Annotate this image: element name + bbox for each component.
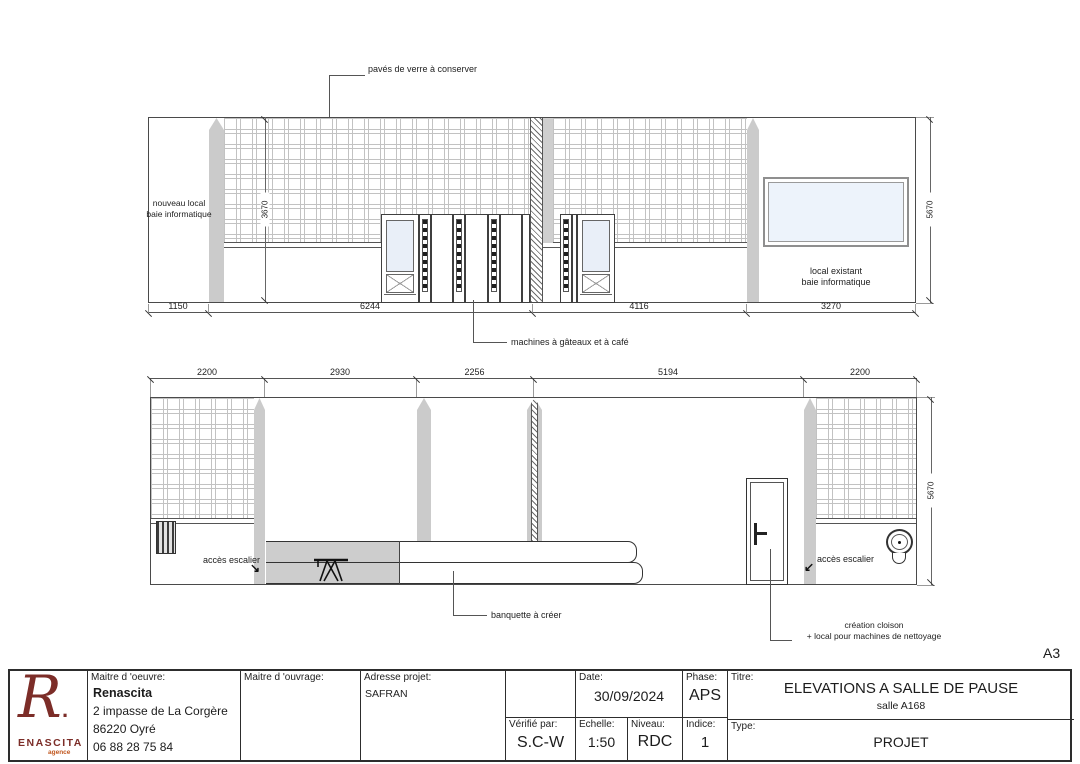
titre-cell: Titre: ELEVATIONS A SALLE DE PAUSE salle… (727, 671, 1074, 719)
adresse-projet-cell: Adresse projet: SAFRAN (360, 671, 505, 760)
dim-ext-top-e2 (917, 397, 935, 398)
wall-junction-shadow (543, 118, 553, 243)
date-cell: Date: 30/09/2024 (575, 671, 682, 717)
note-banquette: banquette à créer (491, 610, 562, 621)
note-local-existant-line1: local existant (810, 266, 862, 276)
vending-machine-panel (560, 214, 572, 303)
wall-junction-hatch (530, 118, 543, 302)
sheet-size-label: A3 (1043, 645, 1060, 661)
note-acces-escalier-right: accès escalier (817, 554, 874, 565)
echelle-cell: Echelle: 1:50 (575, 717, 627, 760)
leader-cloison-h (770, 640, 792, 641)
vending-machine-glass-right (577, 214, 615, 303)
dim-vertical-5670-e1: 5670 (930, 117, 931, 303)
machine-base (580, 294, 612, 301)
note-creation-cloison-line2: + local pour machines de nettoyage (807, 631, 941, 641)
type-value: PROJET (728, 734, 1074, 750)
indice-cell: Indice: 1 (682, 717, 727, 760)
dim-3270: 3270 (746, 301, 916, 311)
note-local-existant-line2: baie informatique (801, 277, 870, 287)
architectural-sheet: pavés de verre à conserver (0, 0, 1080, 764)
door (746, 478, 788, 585)
banquette-divider (399, 541, 400, 584)
maitre-ouvrage-label: Maitre d 'ouvrage: (244, 672, 324, 683)
note-creation-cloison-line1: création cloison (844, 620, 903, 630)
vending-machine-cabinet (431, 214, 453, 303)
dim-5194: 5194 (533, 367, 803, 377)
stair-grille (156, 521, 176, 554)
note-nouveau-local-line2: baie informatique (146, 209, 211, 219)
leader-machines-h (473, 342, 507, 343)
machine-button-panel (456, 219, 462, 292)
arrow-sw-icon: ↙ (804, 561, 814, 573)
echelle-label: Echelle: (579, 719, 615, 730)
note-nouveau-local: nouveau local baie informatique (144, 198, 214, 219)
vending-machine-cabinet (500, 214, 522, 303)
note-nouveau-local-line1: nouveau local (153, 198, 205, 208)
leader-cloison-v (770, 549, 771, 641)
logo-subtitle: agence (48, 749, 70, 756)
dim-2200-a: 2200 (150, 367, 264, 377)
drawing-subtitle: salle A168 (728, 700, 1074, 712)
verifie-empty-cell (505, 671, 575, 717)
niveau-label: Niveau: (631, 719, 665, 730)
dim-1150: 1150 (148, 301, 208, 311)
note-local-existant: local existant baie informatique (761, 266, 911, 289)
pilaster-right (804, 398, 816, 584)
dim-ext-top (916, 117, 934, 118)
machine-hopper (582, 274, 610, 293)
machine-button-panel (422, 219, 428, 292)
urinal-trap (892, 553, 906, 564)
adresse-projet-label: Adresse projet: (364, 672, 431, 683)
dim-2256: 2256 (416, 367, 533, 377)
dim-vertical-5670-e1-label: 5670 (926, 193, 935, 227)
dimension-line-elevation2: 2200 2930 2256 5194 2200 (150, 378, 917, 379)
dim-vertical-5670-e2: 5670 (931, 397, 932, 585)
machine-glass-window (582, 220, 610, 272)
maitre-oeuvre-details: Renascita 2 impasse de La Corgère 86220 … (93, 684, 228, 756)
verifie-value: S.C-W (506, 734, 575, 752)
adresse-projet-value: SAFRAN (365, 688, 408, 700)
dim-vertical-5670-e2-label: 5670 (927, 474, 936, 508)
indice-label: Indice: (686, 719, 715, 730)
verifie-label: Vérifié par: (509, 719, 557, 730)
date-label: Date: (579, 672, 603, 683)
picnic-table-icon (311, 553, 351, 583)
leader-paves-v (329, 75, 330, 122)
vending-machine-glass-left (381, 214, 419, 303)
machine-glass-window (386, 220, 414, 272)
leader-banquette-v (453, 571, 454, 616)
note-paves-de-verre: pavés de verre à conserver (368, 64, 477, 75)
type-label: Type: (731, 721, 755, 732)
logo-dot: . (62, 697, 68, 723)
note-creation-cloison: création cloison + local pour machines d… (794, 620, 954, 641)
leader-machines-v (473, 300, 474, 343)
dim-2200-b: 2200 (803, 367, 917, 377)
vending-machine-panel (488, 214, 500, 303)
maitre-oeuvre-name: Renascita (93, 686, 152, 700)
note-machines: machines à gâteaux et à café (511, 337, 629, 348)
dim-6244: 6244 (208, 301, 532, 311)
window-glass (768, 182, 904, 242)
urinal-drain (898, 541, 901, 544)
phase-label: Phase: (686, 672, 717, 683)
arrow-se-icon: ↘ (250, 562, 260, 574)
leader-banquette-h (453, 615, 487, 616)
urinal (886, 529, 914, 567)
maitre-oeuvre-phone: 06 88 28 75 84 (93, 740, 173, 754)
dimension-line-elevation1: 1150 6244 4116 3270 (148, 312, 916, 313)
door-handle-lever (754, 532, 767, 535)
phase-cell: Phase: APS (682, 671, 727, 717)
pilaster-right (747, 118, 759, 302)
machine-base (384, 294, 416, 301)
machine-hopper (386, 274, 414, 293)
wall-band-right (804, 518, 916, 524)
column-center (527, 398, 542, 541)
glass-block-wall-left (151, 398, 254, 519)
logo-cell: R . ENASCITA agence (10, 671, 87, 760)
niveau-value: RDC (628, 733, 682, 751)
verifie-cell: Vérifié par: S.C-W (505, 717, 575, 760)
vending-machine-panel (419, 214, 431, 303)
leader-paves-h (329, 75, 365, 76)
vending-machine-cabinet (522, 214, 530, 303)
maitre-oeuvre-address1: 2 impasse de La Corgère (93, 704, 228, 718)
vending-machine-panel (453, 214, 465, 303)
column-center-left (417, 398, 431, 541)
phase-value: APS (683, 687, 727, 705)
date-value: 30/09/2024 (576, 688, 682, 704)
maitre-oeuvre-label: Maitre d 'oeuvre: (91, 672, 165, 683)
niveau-cell: Niveau: RDC (627, 717, 682, 760)
banquette (266, 541, 644, 585)
logo-name: ENASCITA (18, 737, 83, 749)
vending-machine-cabinet (465, 214, 488, 303)
maitre-oeuvre-address2: 86220 Oyré (93, 722, 156, 736)
echelle-value: 1:50 (576, 734, 627, 750)
indice-value: 1 (683, 734, 727, 751)
type-cell: Type: PROJET (727, 719, 1074, 760)
window-frame (763, 177, 909, 247)
dim-4116: 4116 (532, 301, 746, 311)
maitre-oeuvre-cell: Maitre d 'oeuvre: Renascita 2 impasse de… (87, 671, 240, 760)
machine-button-panel (491, 219, 497, 292)
drawing-title: ELEVATIONS A SALLE DE PAUSE (728, 680, 1074, 697)
glass-block-wall-right (816, 398, 916, 519)
dim-2930: 2930 (264, 367, 416, 377)
machine-button-panel (563, 219, 569, 292)
logo-letter: R (18, 663, 62, 731)
dim-vertical-3670-label: 3670 (261, 193, 270, 227)
maitre-ouvrage-cell: Maitre d 'ouvrage: (240, 671, 360, 760)
title-block: R . ENASCITA agence Maitre d 'oeuvre: Re… (8, 669, 1072, 762)
urinal-bowl (886, 529, 913, 555)
elevation-2-wall (150, 397, 917, 585)
dim-vertical-3670: 3670 (265, 117, 266, 303)
column-center-hatch (531, 398, 538, 541)
